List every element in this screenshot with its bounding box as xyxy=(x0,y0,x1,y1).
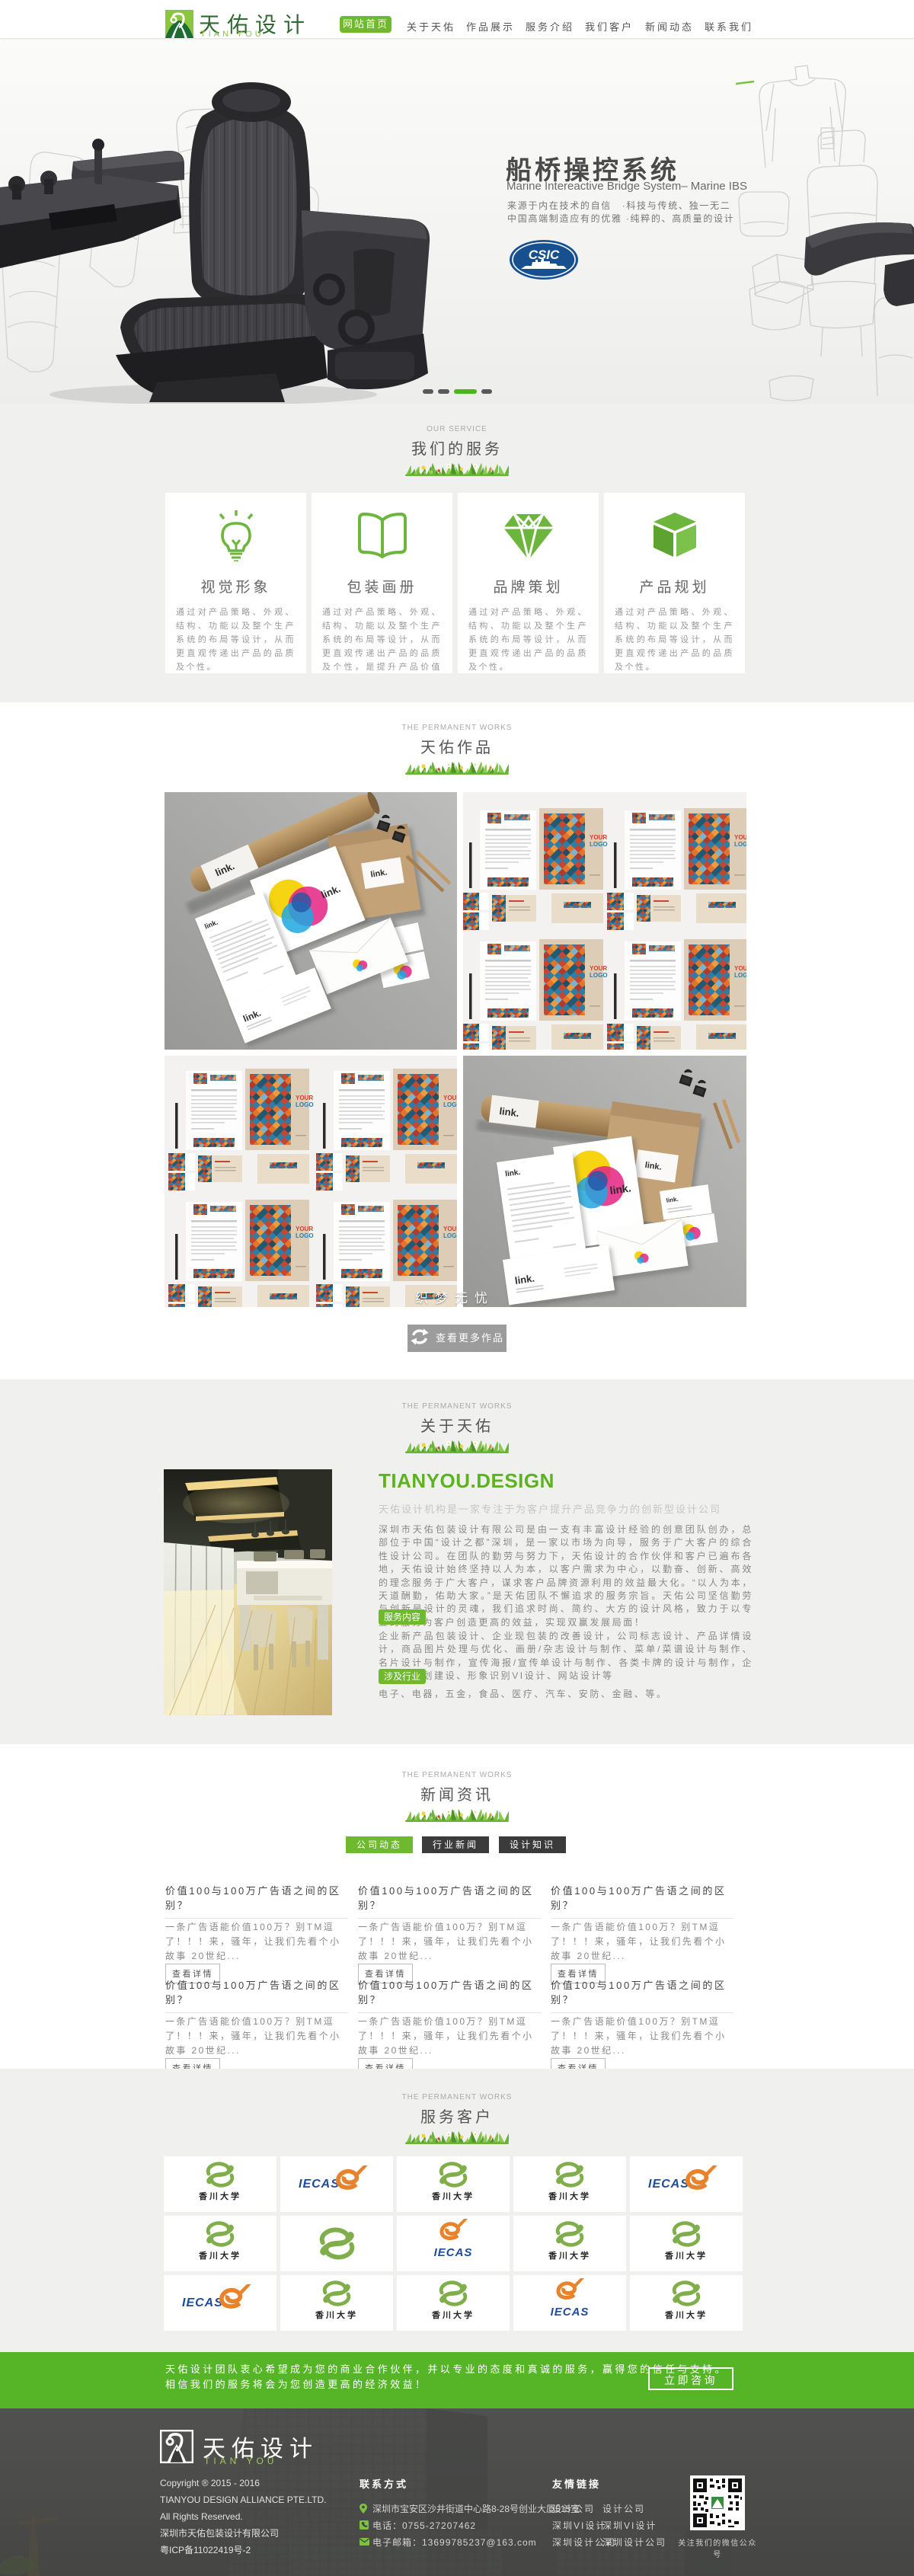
svg-text:CSIC: CSIC xyxy=(529,248,560,262)
svg-text:link.: link. xyxy=(499,1105,520,1119)
